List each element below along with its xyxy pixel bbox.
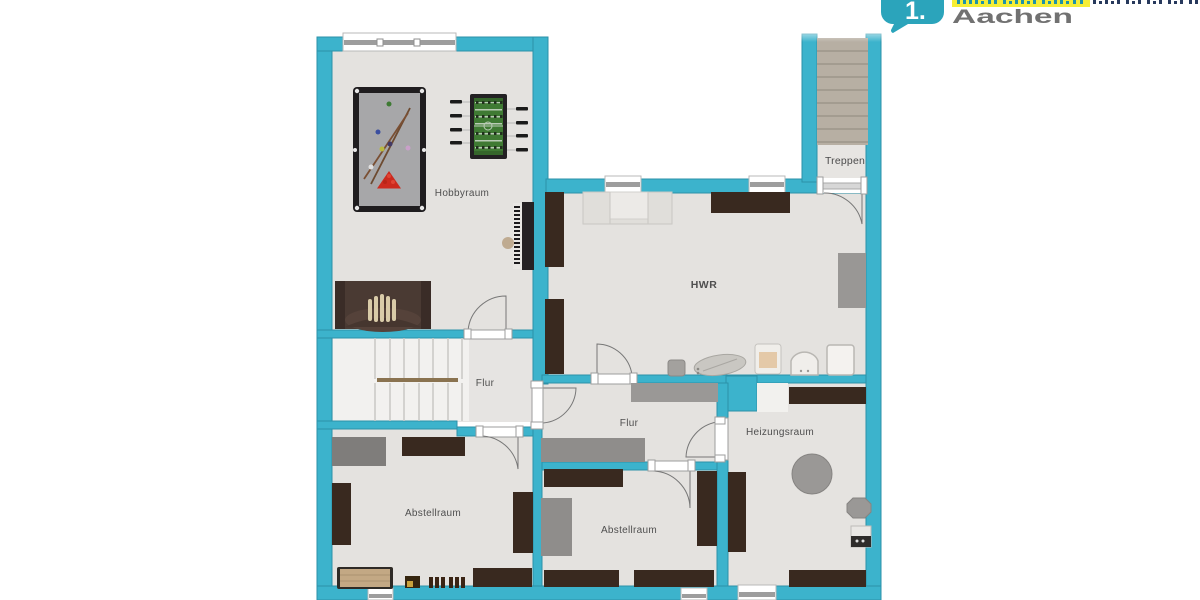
svg-text:Flur: Flur (476, 378, 495, 389)
svg-text:Abstellraum: Abstellraum (405, 508, 461, 519)
svg-text:HWR: HWR (691, 279, 718, 291)
svg-text:Treppen: Treppen (825, 155, 865, 167)
svg-text:Abstellraum: Abstellraum (601, 525, 657, 536)
svg-text:1.: 1. (905, 0, 926, 25)
svg-text:Flur: Flur (620, 418, 639, 429)
svg-text:Aachen: Aachen (952, 7, 1073, 28)
svg-text:Heizungsraum: Heizungsraum (746, 427, 814, 438)
svg-text:Hobbyraum: Hobbyraum (435, 188, 489, 199)
